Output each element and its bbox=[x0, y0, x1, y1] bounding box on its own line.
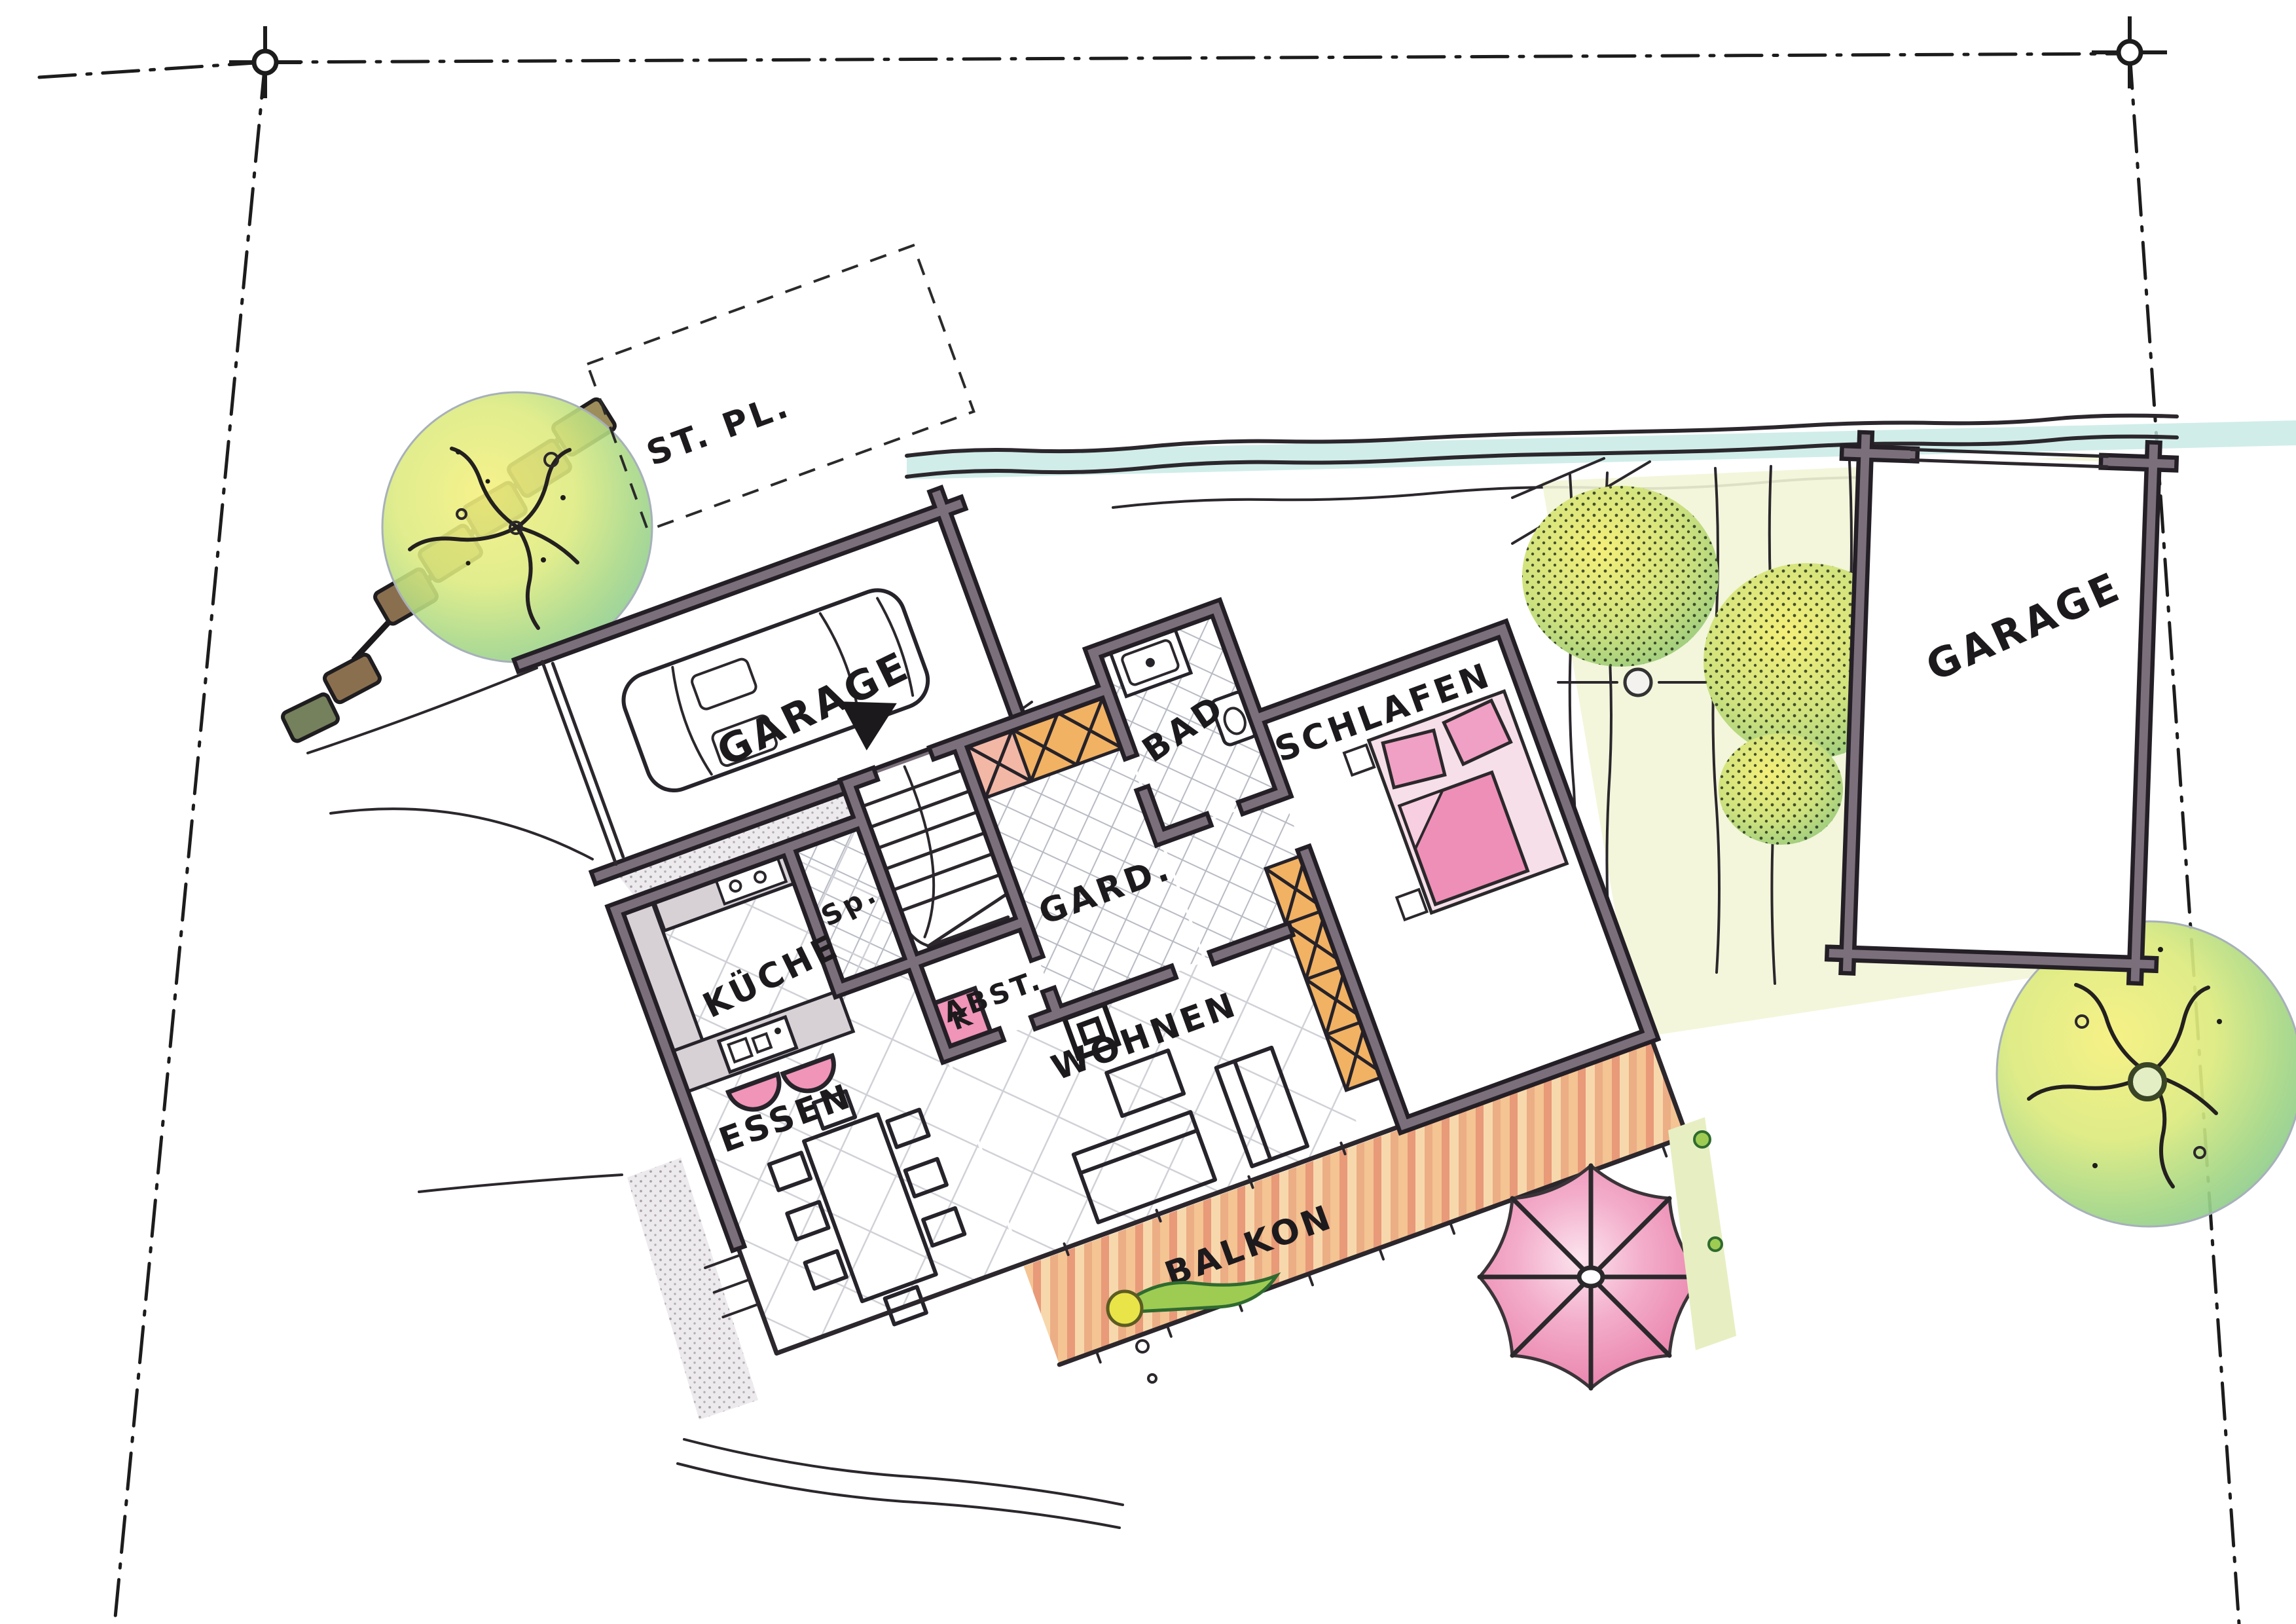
right-garage: GARAGE bbox=[1831, 438, 2171, 978]
stepping-stone bbox=[1625, 669, 1651, 695]
parasol bbox=[1480, 1166, 1702, 1388]
plan-canvas: GARAGE ST. PL. bbox=[0, 0, 2296, 1624]
garden-bush bbox=[1522, 486, 1719, 667]
parking-label: ST. PL. bbox=[642, 386, 796, 474]
survey-marker-northwest bbox=[229, 26, 301, 98]
site-plan-page: { "plan": { "labels": { "parking": "ST. … bbox=[0, 0, 2296, 1624]
survey-marker-northeast bbox=[2092, 16, 2167, 88]
